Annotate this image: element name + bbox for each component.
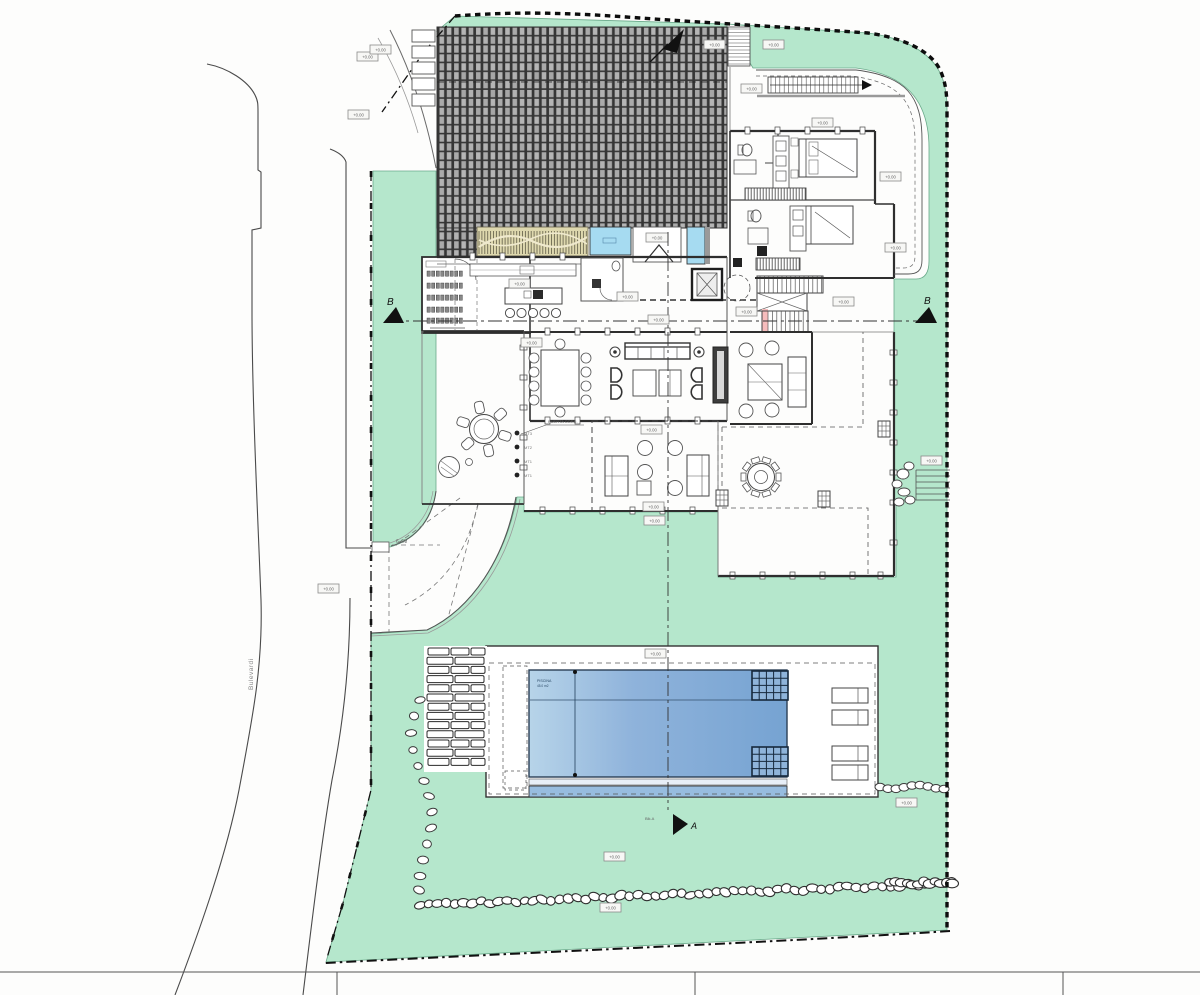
svg-text:+0.00: +0.00: [650, 652, 661, 657]
svg-text:Blk.A: Blk.A: [645, 816, 655, 821]
svg-text:MT2: MT2: [524, 445, 533, 450]
svg-text:PISCINA: PISCINA: [537, 679, 552, 683]
svg-text:A: A: [690, 821, 697, 831]
svg-text:+0.00: +0.00: [746, 87, 757, 92]
svg-text:+0.00: +0.00: [375, 48, 386, 53]
svg-text:+0.00: +0.00: [901, 801, 912, 806]
svg-text:+0.00: +0.00: [646, 428, 657, 433]
svg-text:+0.00: +0.00: [526, 341, 537, 346]
svg-text:+0.00: +0.00: [648, 505, 659, 510]
svg-text:PUERTA CORR.: PUERTA CORR.: [548, 419, 578, 424]
svg-text:+0.00: +0.00: [649, 519, 660, 524]
svg-text:+0.00: +0.00: [362, 55, 373, 60]
svg-text:MT3: MT3: [524, 431, 533, 436]
svg-text:+0.00: +0.00: [514, 282, 525, 287]
svg-text:B: B: [924, 296, 931, 307]
svg-text:+0.00: +0.00: [926, 459, 937, 464]
svg-text:+0.00: +0.00: [709, 43, 720, 48]
svg-text:+0.00: +0.00: [817, 121, 828, 126]
svg-text:45.0 m2: 45.0 m2: [537, 684, 549, 688]
svg-text:+0.00: +0.00: [353, 113, 364, 118]
svg-text:+0.00: +0.00: [609, 855, 620, 860]
svg-text:+0.00: +0.00: [653, 318, 664, 323]
svg-text:+0.00: +0.00: [323, 587, 334, 592]
svg-text:+0.00: +0.00: [605, 906, 616, 911]
svg-text:+0.00: +0.00: [622, 295, 633, 300]
svg-text:+0.00: +0.00: [741, 310, 752, 315]
svg-text:B: B: [387, 297, 394, 308]
svg-text:+0.00: +0.00: [890, 246, 901, 251]
svg-text:+0.00: +0.00: [838, 300, 849, 305]
svg-text:6-4M: 6-4M: [396, 539, 407, 545]
svg-text:+0.00: +0.00: [768, 43, 779, 48]
svg-text:+0.00: +0.00: [885, 175, 896, 180]
svg-text:MT1: MT1: [524, 473, 533, 478]
svg-text:Bulevardi: Bulevardi: [248, 658, 255, 690]
svg-text:MT1: MT1: [524, 459, 533, 464]
svg-text:+0.00: +0.00: [652, 236, 663, 241]
